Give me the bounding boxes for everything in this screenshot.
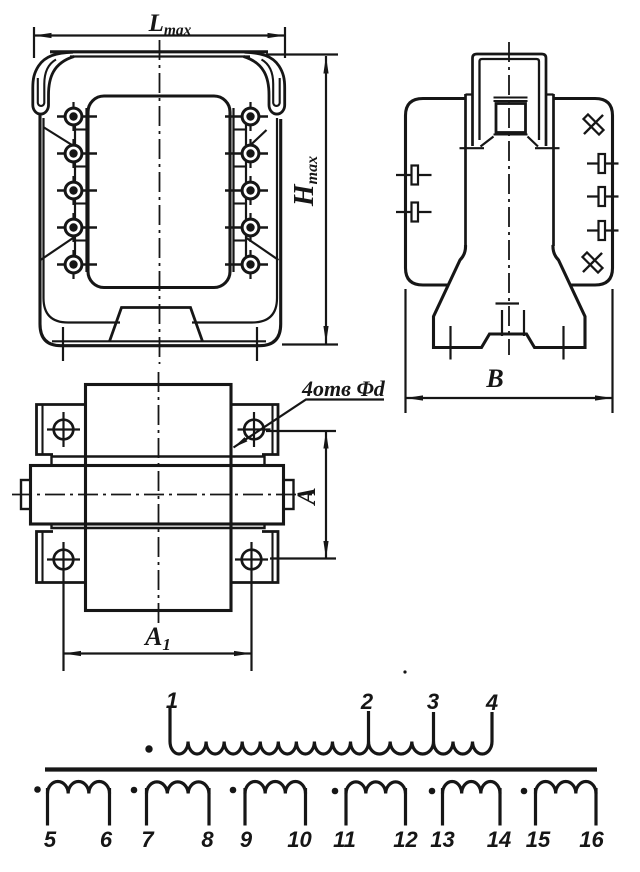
svg-text:9: 9 <box>240 827 253 852</box>
svg-text:6: 6 <box>100 827 113 852</box>
svg-text:3: 3 <box>427 689 439 714</box>
svg-text:11: 11 <box>333 827 356 852</box>
svg-text:13: 13 <box>430 827 454 852</box>
svg-text:7: 7 <box>141 827 155 852</box>
svg-text:B: B <box>485 364 503 393</box>
svg-text:2: 2 <box>360 689 374 714</box>
svg-text:A: A <box>292 487 321 506</box>
svg-text:4отв Φd: 4отв Φd <box>301 376 386 401</box>
svg-text:10: 10 <box>287 827 312 852</box>
svg-text:5: 5 <box>44 827 57 852</box>
svg-text:16: 16 <box>579 827 604 852</box>
svg-text:15: 15 <box>526 827 551 852</box>
svg-text:12: 12 <box>393 827 418 852</box>
svg-text:1: 1 <box>166 688 178 713</box>
svg-text:4: 4 <box>485 690 498 715</box>
svg-text:14: 14 <box>487 827 511 852</box>
svg-text:8: 8 <box>201 827 214 852</box>
